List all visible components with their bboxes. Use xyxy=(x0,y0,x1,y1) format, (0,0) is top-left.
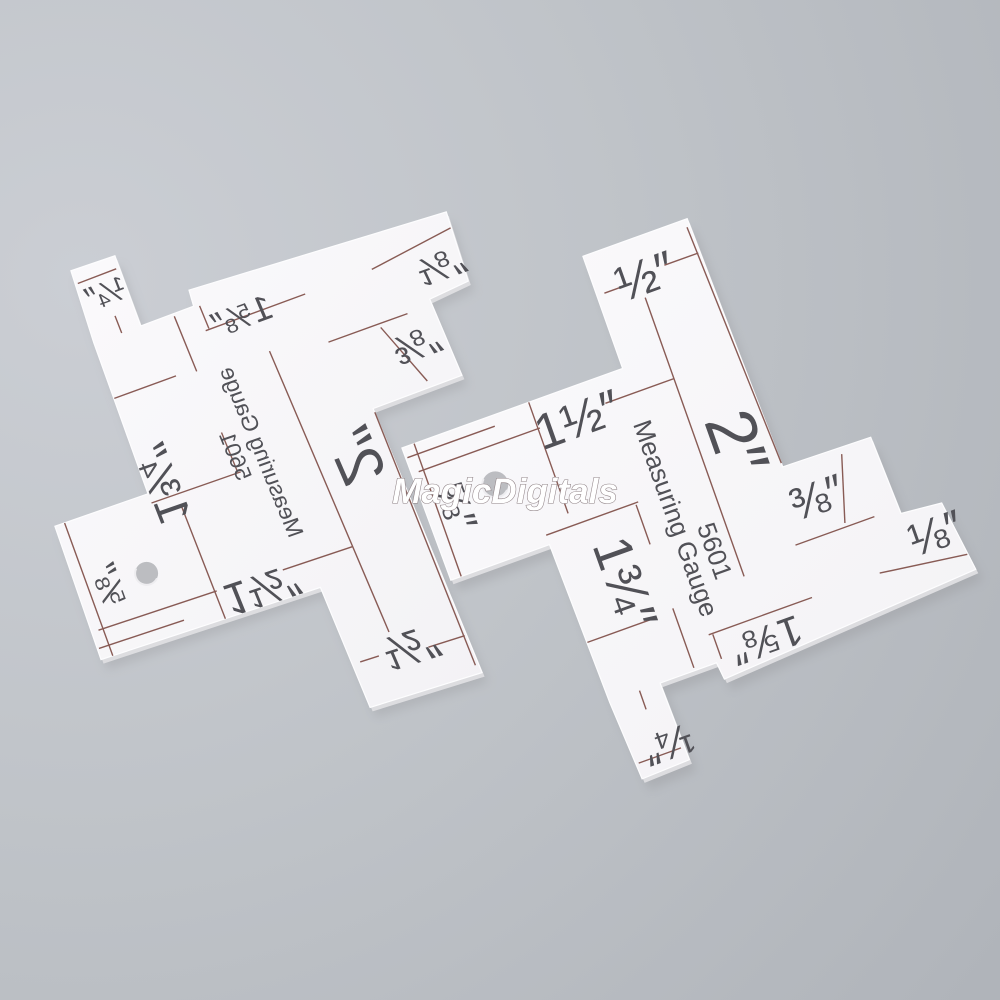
svg-text:MagicDigitals: MagicDigitals xyxy=(392,472,618,511)
